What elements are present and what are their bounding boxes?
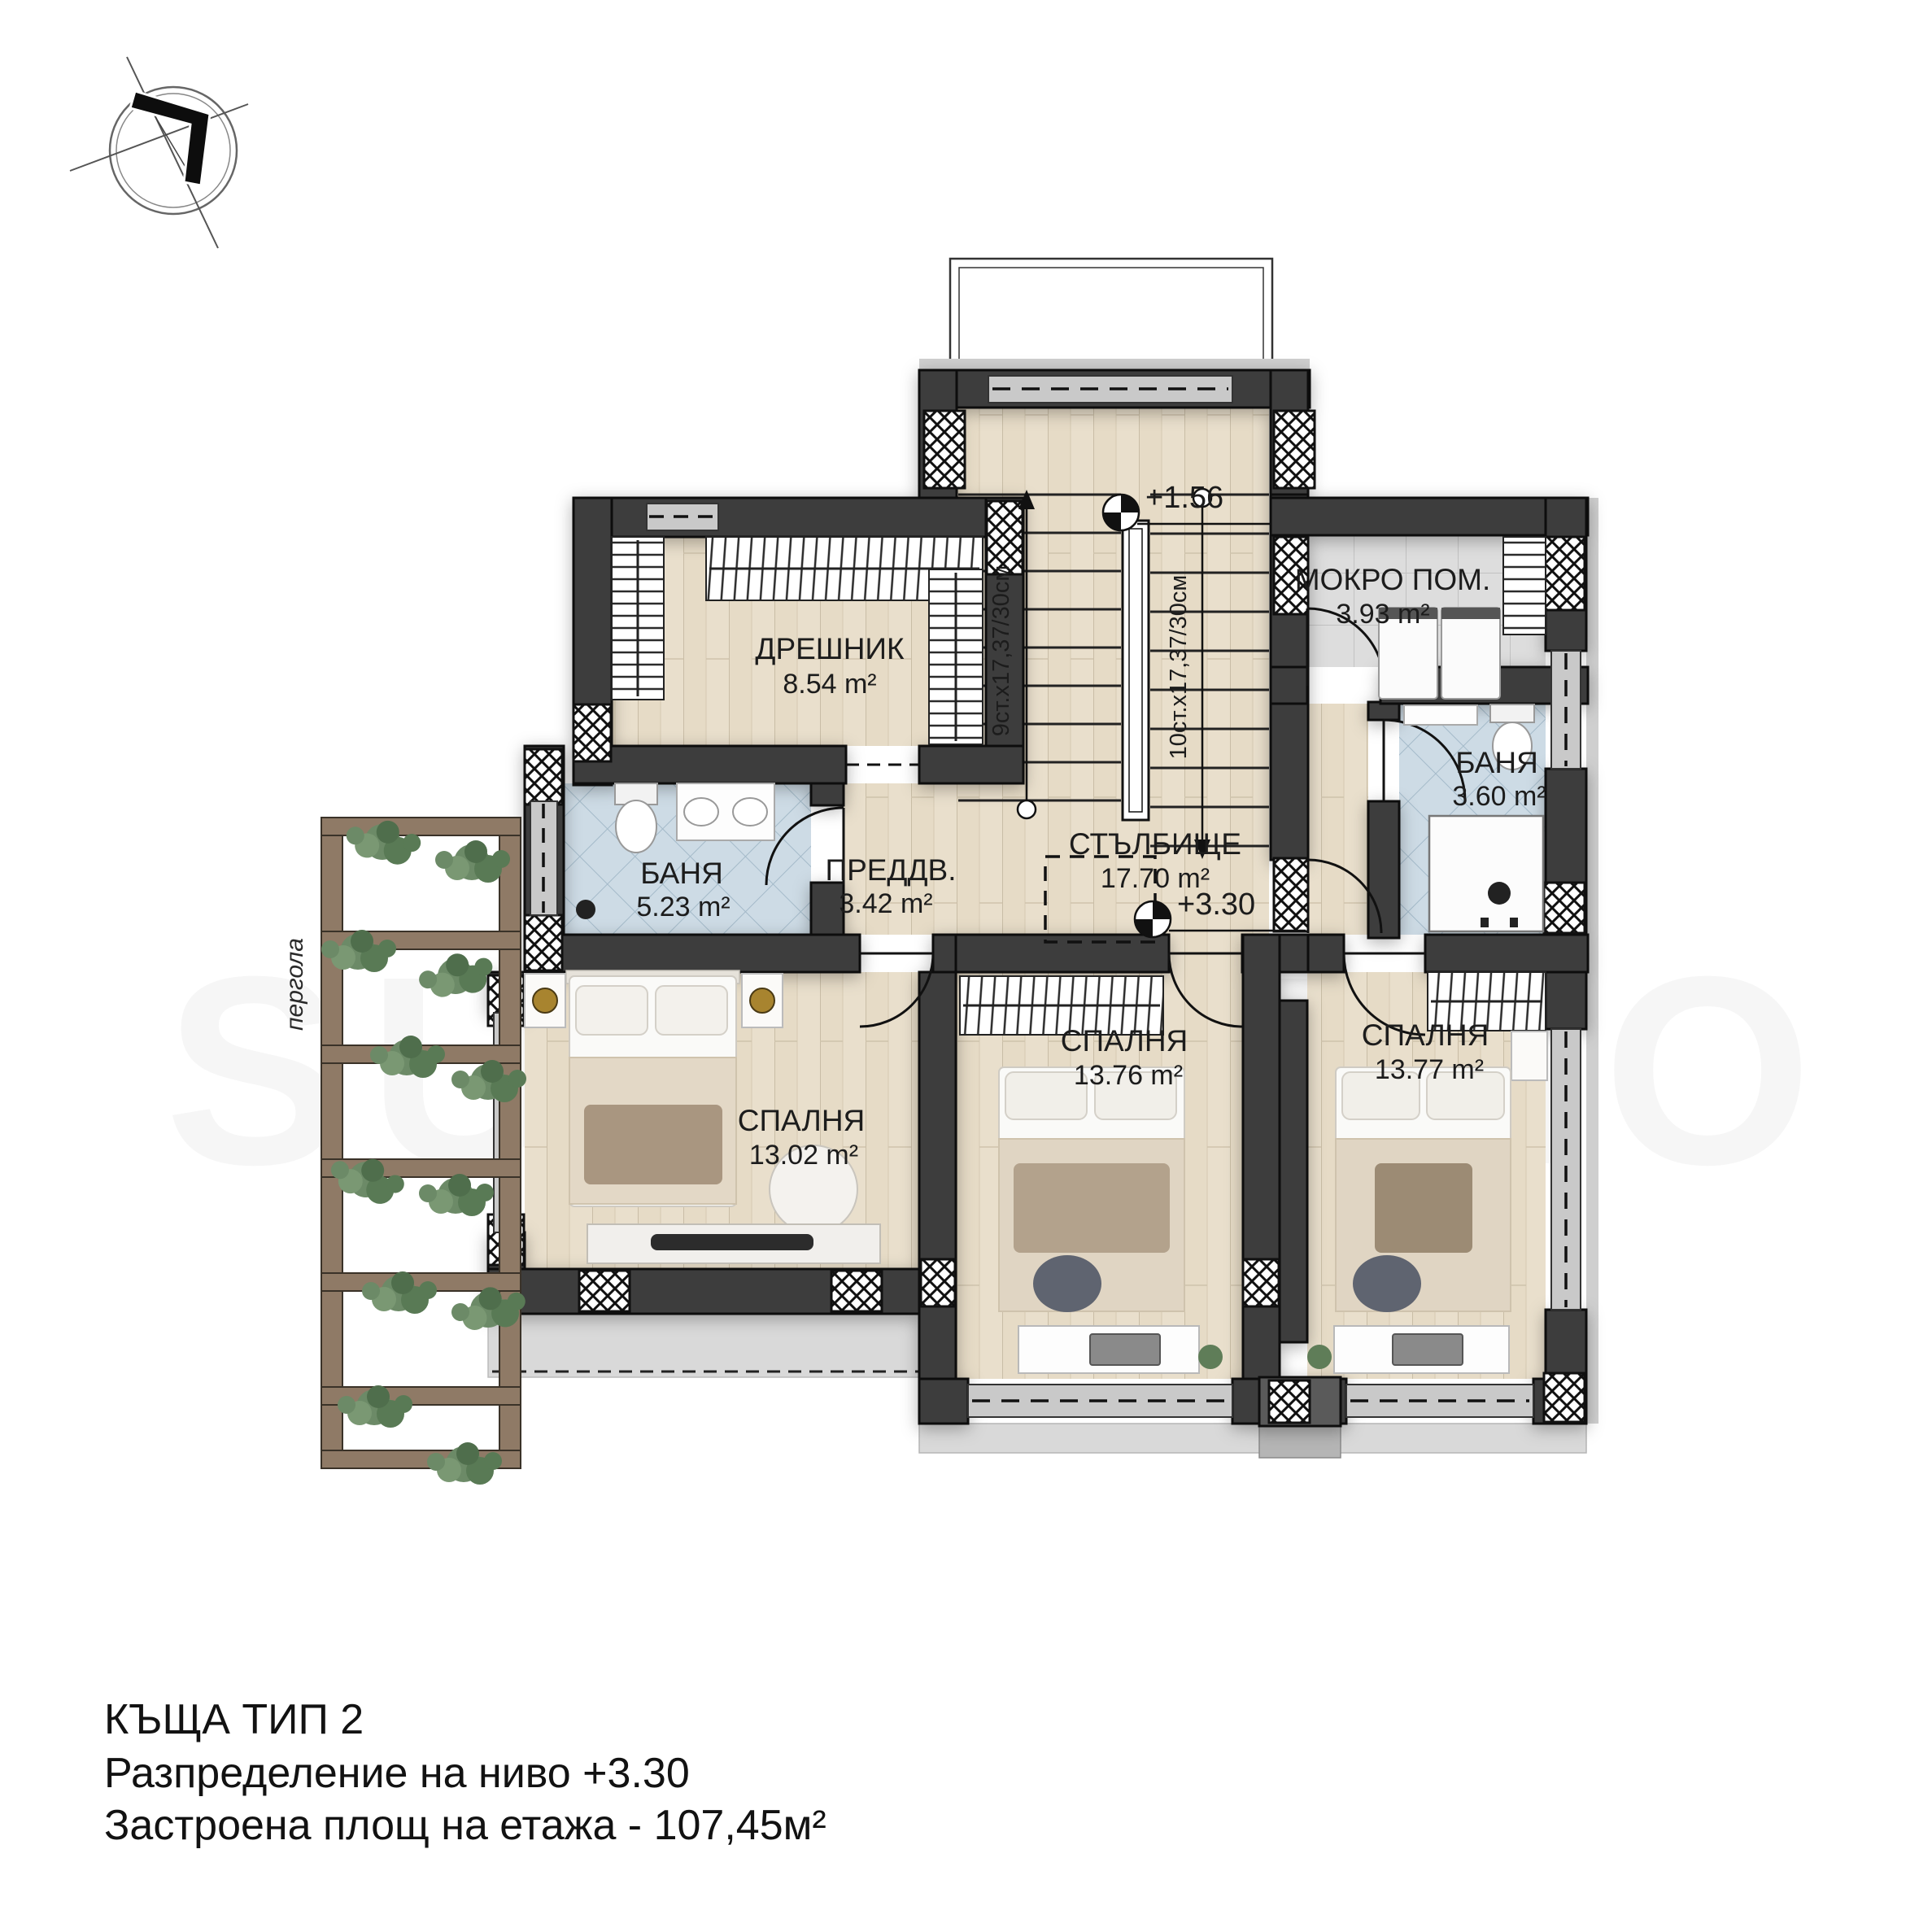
north-arrow-icon — [70, 57, 248, 248]
stair-dimension-up: 9ст.х17,37/30см — [988, 565, 1014, 737]
room-label-preddverie: ПРЕДДВ. — [825, 853, 956, 887]
balcony-outline — [950, 259, 1272, 373]
room-label-banya-left: БАНЯ — [640, 857, 723, 890]
room-area-preddverie: 3.42 m² — [839, 888, 932, 919]
title-block: КЪЩА ТИП 2 Разпределение на ниво +3.30 З… — [104, 1694, 826, 1851]
room-area-dreshnik: 8.54 m² — [783, 669, 876, 700]
room-area-stalbishte: 17.70 m² — [1101, 863, 1210, 894]
plan-subtitle-level: Разпределение на ниво +3.30 — [104, 1747, 826, 1799]
room-area-bedroom-right: 13.77 m² — [1375, 1054, 1484, 1085]
floor-plan-page: SUPRIMMO — [0, 0, 1932, 1932]
plan-title: КЪЩА ТИП 2 — [104, 1694, 826, 1746]
room-label-stalbishte: СТЪЛБИЩЕ — [1069, 827, 1241, 861]
room-label-bedroom-right: СПАЛНЯ — [1362, 1018, 1489, 1052]
room-label-dreshnik: ДРЕШНИК — [755, 632, 905, 665]
room-label-banya-right: БАНЯ — [1455, 746, 1538, 779]
stair-dimension-down: 10ст.х17,37/30см — [1166, 575, 1192, 760]
room-area-mokro: 3.93 m² — [1336, 599, 1429, 630]
level-value-stairs: +1.56 — [1145, 481, 1223, 515]
room-area-bedroom-mid: 13.76 m² — [1074, 1060, 1183, 1091]
floor-vestibule — [1308, 704, 1368, 935]
room-area-banya-left: 5.23 m² — [636, 892, 730, 922]
floor-plan-drawing: SUPRIMMO — [0, 0, 1932, 1932]
room-area-bedroom-left: 13.02 m² — [749, 1140, 858, 1171]
room-label-mokro: МОКРО ПОМ. — [1295, 563, 1491, 596]
room-label-bedroom-left: СПАЛНЯ — [738, 1104, 866, 1137]
plan-subtitle-area: Застроена площ на етажа - 107,45м² — [104, 1799, 826, 1851]
room-area-banya-right: 3.60 m² — [1452, 781, 1546, 812]
pergola-label: пергола — [281, 938, 308, 1031]
room-label-bedroom-mid: СПАЛНЯ — [1061, 1024, 1188, 1058]
